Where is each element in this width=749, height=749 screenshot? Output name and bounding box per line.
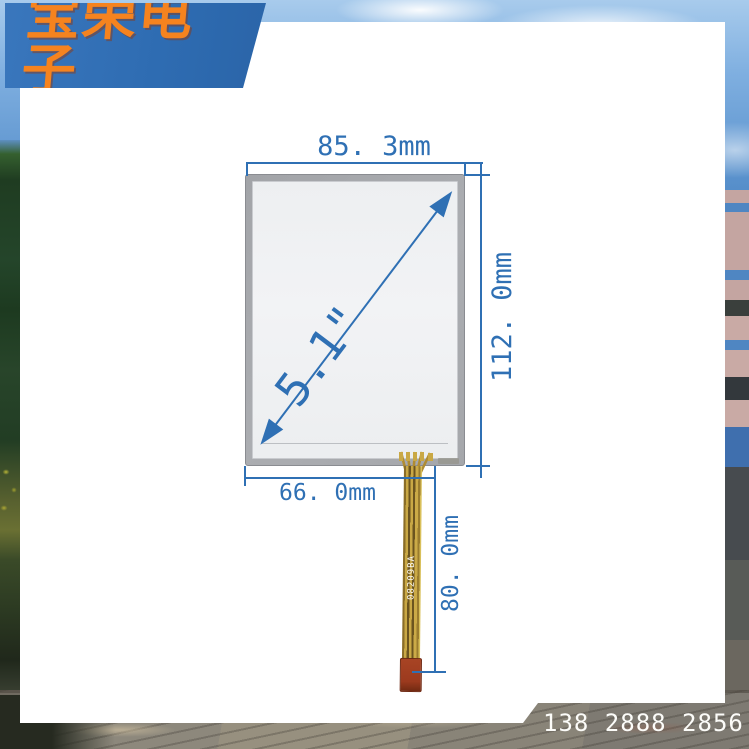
width-dim-label: 85. 3mm [265, 131, 483, 162]
panel-inner-edge-line [262, 443, 448, 444]
cable-length-dim-label: 80. 0mm [438, 528, 464, 612]
cable-length-dim-line [434, 467, 436, 673]
trees-left-strip [0, 140, 21, 749]
fpc-cable-marking: 08209BA [407, 530, 418, 600]
height-dim-label: 112. 0mm [487, 262, 518, 382]
building-right-strip [724, 190, 749, 700]
product-image: 宝荣电子 08209BA 85. 3mm [0, 0, 749, 749]
height-dim-line [480, 162, 482, 478]
width-dim-line [247, 162, 483, 164]
height-dim-tick-top [466, 174, 490, 176]
height-dim-tick-bottom [466, 465, 490, 467]
fpc-connector [400, 658, 422, 692]
flowers-left-strip [0, 460, 21, 530]
phone-number: 138 2888 2856 [543, 709, 744, 737]
active-width-dim-line [245, 477, 435, 479]
brand-logo-text: 宝荣电子 [20, 0, 243, 86]
width-dim-tick-left [246, 162, 248, 176]
active-width-dim-label: 66. 0mm [245, 480, 410, 506]
cable-length-tick-bottom [412, 671, 446, 673]
